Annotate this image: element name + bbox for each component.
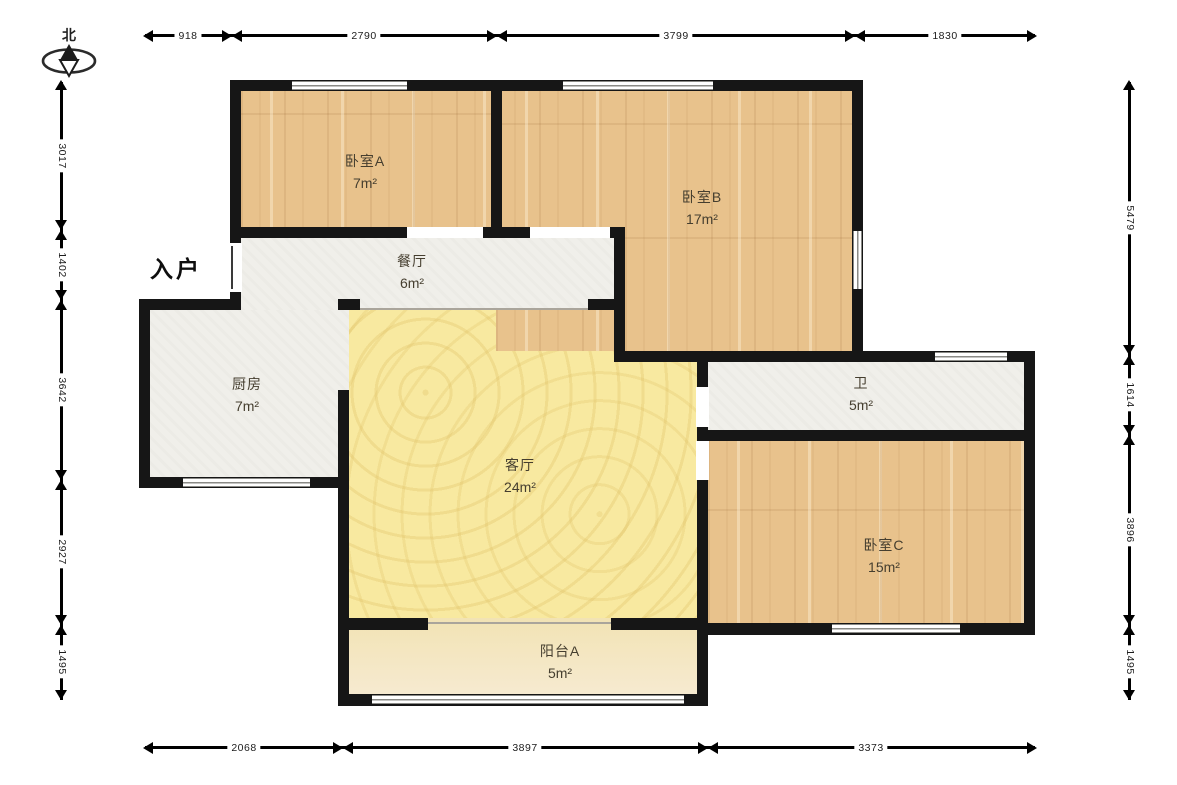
dim-label: 3897: [508, 742, 541, 754]
dim-label: 2068: [227, 742, 260, 754]
dim-tick: [222, 30, 232, 42]
wall-living-topleft-stub: [338, 299, 360, 310]
dim-label: 1495: [1124, 645, 1136, 678]
window-bedroom-c-bottom: [832, 624, 960, 633]
dim-label: 3373: [854, 742, 887, 754]
dim-tick: [232, 30, 242, 42]
room-bedroom-b-label: 卧室B 17m²: [682, 186, 722, 230]
dim-tick: [55, 290, 67, 300]
door-bedroom-c: [696, 441, 709, 480]
dim-tick: [55, 615, 67, 625]
wall-bedroom-c-top: [697, 430, 1035, 441]
window-balcony-bottom: [372, 695, 684, 704]
wall-balcony-divider-left: [338, 618, 428, 630]
room-bedroom-b-floor: [496, 88, 852, 351]
room-name: 阳台A: [540, 640, 580, 662]
dim-label: 3896: [1124, 513, 1136, 546]
dim-tick: [55, 220, 67, 230]
dining-living-threshold: [360, 308, 588, 310]
room-name: 卧室C: [863, 534, 904, 556]
room-area: 17m²: [682, 208, 722, 230]
window-bedroom-b-right: [853, 231, 862, 289]
dim-label: 3642: [56, 373, 68, 406]
dim-tick: [497, 30, 507, 42]
room-bedroom-c-label: 卧室C 15m²: [863, 534, 904, 578]
dim-tick: [698, 742, 708, 754]
dim-arrow: [1123, 690, 1135, 700]
north-compass-icon: [38, 41, 100, 79]
dim-tick: [55, 300, 67, 310]
dim-tick: [1123, 435, 1135, 445]
dim-arrow: [143, 742, 153, 754]
dim-label: 3017: [56, 139, 68, 172]
door-bath: [696, 387, 709, 427]
dim-arrow: [143, 30, 153, 42]
living-balcony-threshold: [428, 622, 611, 624]
dim-line-bottom: [145, 746, 1035, 749]
dim-tick: [55, 480, 67, 490]
dim-tick: [845, 30, 855, 42]
room-kitchen-label: 厨房 7m²: [232, 373, 262, 417]
dim-label: 3799: [659, 30, 692, 42]
dim-line-top: [145, 34, 1035, 37]
dim-arrow: [1027, 30, 1037, 42]
dim-label: 2790: [347, 30, 380, 42]
dim-tick: [1123, 345, 1135, 355]
wall-bedroom-b-right: [852, 80, 863, 362]
dim-tick: [1123, 625, 1135, 635]
door-entrance-leaf: [231, 246, 233, 289]
dim-tick: [708, 742, 718, 754]
dim-tick: [1123, 425, 1135, 435]
dim-tick: [333, 742, 343, 754]
room-dining-floor: [241, 238, 614, 310]
dim-label: 918: [174, 30, 201, 42]
dim-tick: [55, 230, 67, 240]
room-area: 7m²: [232, 395, 262, 417]
entrance-label: 入户: [150, 250, 202, 284]
dim-label: 2927: [56, 535, 68, 568]
dim-arrow: [55, 80, 67, 90]
room-bedroom-c-floor: [708, 441, 1024, 623]
room-living-label: 客厅 24m²: [504, 454, 536, 498]
dim-label: 1614: [1124, 378, 1136, 411]
room-dining-label: 餐厅 6m²: [397, 250, 427, 294]
room-area: 5m²: [849, 394, 873, 416]
room-area: 5m²: [540, 662, 580, 684]
room-area: 7m²: [345, 172, 385, 194]
wall-right-outer: [1024, 351, 1035, 635]
wall-balcony-divider-right: [611, 618, 708, 630]
dim-label: 5479: [1124, 201, 1136, 234]
wall-kitchen-top: [139, 299, 241, 310]
dim-tick: [1123, 355, 1135, 365]
door-bedroom-a: [407, 227, 483, 238]
room-name: 餐厅: [397, 250, 427, 272]
window-bedroom-b-top: [563, 81, 713, 90]
dim-tick: [487, 30, 497, 42]
wall-kitchen-left: [139, 299, 150, 488]
dim-label: 1830: [928, 30, 961, 42]
room-area: 24m²: [504, 476, 536, 498]
room-name: 卫: [849, 372, 873, 394]
dim-tick: [55, 625, 67, 635]
window-kitchen-bottom: [183, 478, 310, 487]
room-bath-label: 卫 5m²: [849, 372, 873, 416]
window-bath-top: [935, 352, 1007, 361]
room-name: 客厅: [504, 454, 536, 476]
dim-label: 1495: [56, 645, 68, 678]
room-name: 厨房: [232, 373, 262, 395]
room-area: 15m²: [863, 556, 904, 578]
dim-label: 1402: [56, 248, 68, 281]
wall-dining-right: [614, 227, 625, 362]
room-name: 卧室B: [682, 186, 722, 208]
dim-tick: [55, 470, 67, 480]
room-area: 6m²: [397, 272, 427, 294]
wall-dining-stub: [588, 299, 625, 310]
door-bedroom-b: [530, 227, 610, 238]
floorplan-canvas: 卧室A 7m² 卧室B 17m² 餐厅 6m² 厨房 7m² 客厅 24m² 卫…: [0, 0, 1177, 785]
dim-tick: [343, 742, 353, 754]
dim-arrow: [55, 690, 67, 700]
wall-west: [338, 390, 349, 706]
room-bedroom-a-label: 卧室A 7m²: [345, 150, 385, 194]
dim-tick: [1123, 615, 1135, 625]
dim-arrow: [1123, 80, 1135, 90]
room-balcony-label: 阳台A 5m²: [540, 640, 580, 684]
dim-tick: [855, 30, 865, 42]
dim-arrow: [1027, 742, 1037, 754]
wall-bedroom-a-b-divider: [491, 88, 502, 236]
window-bedroom-a-top: [292, 81, 407, 90]
room-name: 卧室A: [345, 150, 385, 172]
